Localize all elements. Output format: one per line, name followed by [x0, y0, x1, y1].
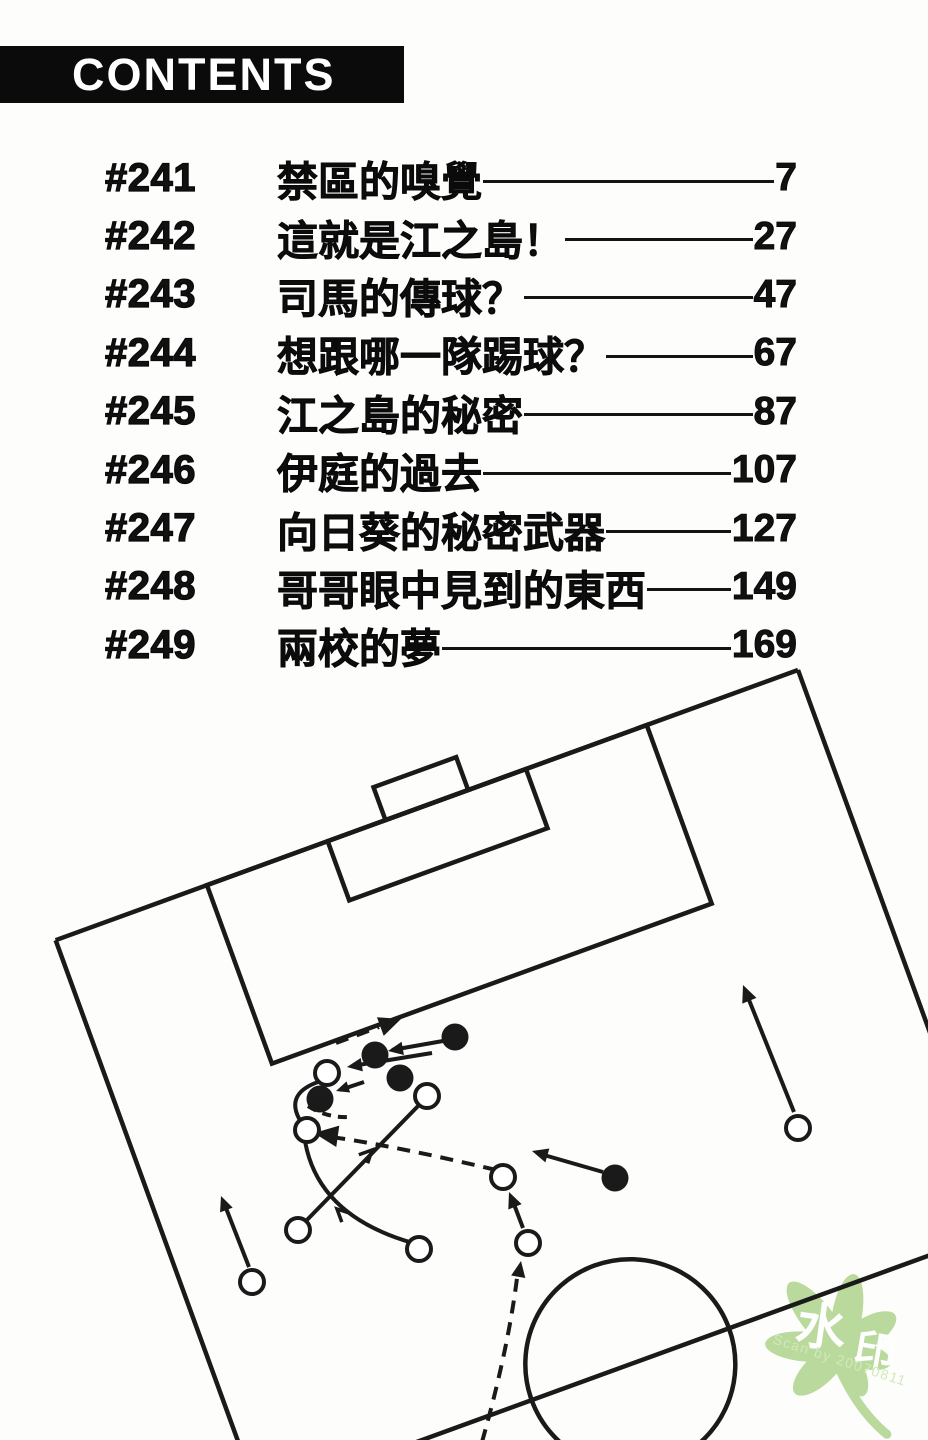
title-bar: CONTENTS: [0, 46, 404, 103]
toc-entry: #243司馬的傳球？47: [105, 266, 797, 324]
chapter-number: #243: [105, 272, 277, 317]
chapter-title: 伊庭的過去: [277, 440, 482, 500]
player-filled-circle: [387, 1065, 414, 1092]
arrowhead: [511, 1261, 525, 1278]
toc-entry: #245江之島的秘密87: [105, 383, 797, 441]
player-filled-circle: [307, 1086, 334, 1113]
chapter-title: 司馬的傳球？: [277, 265, 523, 325]
leader-line: [606, 530, 731, 533]
leader-line: [565, 238, 753, 241]
arrow-line: [224, 1203, 249, 1267]
arrow-line: [332, 1137, 496, 1170]
chapter-number: #248: [105, 564, 277, 609]
chapter-title: 禁區的嗅覺: [277, 148, 482, 208]
watermark: 水 印 Scan by 20070811: [752, 1261, 913, 1435]
player-open-circle: [286, 1218, 310, 1242]
leader-line: [647, 588, 731, 591]
pitch-lines: [44, 637, 928, 1440]
arrow-chevron: [337, 1209, 350, 1222]
leader-line: [606, 355, 753, 358]
page-number: 67: [754, 331, 797, 375]
arrowhead: [336, 1081, 350, 1092]
player-open-circle: [295, 1118, 319, 1142]
page-number: 87: [754, 390, 797, 434]
player-open-circle: [415, 1084, 439, 1108]
toc-entry: #249兩校的夢169: [105, 616, 797, 674]
contents-page: 水 印 Scan by 20070811 CONTENTS #241禁區的嗅覺7…: [0, 0, 928, 1440]
player-filled-circle: [362, 1042, 389, 1069]
arrowhead: [377, 1017, 401, 1036]
player-open-circle: [407, 1237, 431, 1261]
chapter-number: #246: [105, 448, 277, 493]
chapter-title: 兩校的夢: [277, 615, 441, 675]
page-number: 107: [732, 448, 797, 492]
arrowhead: [347, 1058, 363, 1071]
leader-line: [483, 180, 774, 183]
arrow-line: [747, 995, 794, 1112]
toc-entry: #247向日葵的秘密武器127: [105, 499, 797, 557]
player-open-circle: [240, 1270, 264, 1294]
chapter-title: 向日葵的秘密武器: [277, 499, 605, 559]
page-number: 169: [732, 623, 797, 667]
page-number: 7: [775, 156, 797, 200]
chapter-title: 江之島的秘密: [277, 382, 523, 442]
page-number: 27: [754, 215, 797, 259]
chapter-number: #244: [105, 331, 277, 376]
toc-entry: #246伊庭的過去107: [105, 441, 797, 499]
arrowhead: [388, 1042, 404, 1055]
arrow-line: [305, 1141, 413, 1243]
leader-line: [483, 472, 731, 475]
player-open-circle: [315, 1061, 339, 1085]
player-open-circle: [786, 1116, 810, 1140]
page-number: 149: [732, 565, 797, 609]
toc-entry: #244想跟哪一隊踢球？67: [105, 324, 797, 382]
players: [240, 1024, 810, 1295]
leader-line: [524, 413, 753, 416]
chapter-number: #245: [105, 389, 277, 434]
player-open-circle: [491, 1165, 515, 1189]
chapter-number: #242: [105, 214, 277, 259]
chapter-title: 哥哥眼中見到的東西: [277, 557, 646, 617]
chapter-number: #247: [105, 506, 277, 551]
leader-line: [524, 296, 753, 299]
player-filled-circle: [602, 1165, 629, 1192]
arrow-line: [305, 1103, 421, 1222]
leader-line: [442, 647, 731, 650]
player-open-circle: [516, 1231, 540, 1255]
toc-entry: #242這就是江之島！27: [105, 207, 797, 265]
chapter-number: #241: [105, 156, 277, 201]
chapter-title: 這就是江之島！: [277, 207, 564, 267]
chapter-title: 想跟哪一隊踢球？: [277, 323, 605, 383]
chapter-number: #249: [105, 623, 277, 668]
page-number: 47: [754, 273, 797, 317]
toc-entry: #241禁區的嗅覺7: [105, 149, 797, 207]
arrowhead: [220, 1196, 233, 1212]
page-number: 127: [732, 507, 797, 551]
page-title: CONTENTS: [72, 52, 336, 97]
toc-entry: #248哥哥眼中見到的東西149: [105, 558, 797, 616]
arrowhead: [532, 1148, 549, 1162]
player-filled-circle: [442, 1024, 469, 1051]
toc-list: #241禁區的嗅覺7#242這就是江之島！27#243司馬的傳球？47#244想…: [105, 149, 797, 675]
arrow-line: [482, 1278, 517, 1440]
